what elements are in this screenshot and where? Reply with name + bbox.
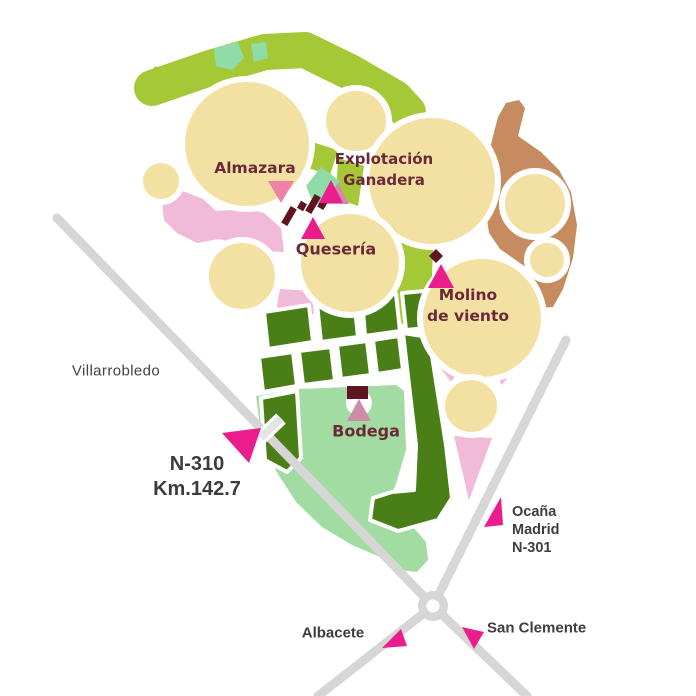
vineyard-plot	[264, 305, 313, 349]
label-ocana-line3: N-301	[512, 539, 560, 557]
crop-circle	[140, 160, 182, 202]
label-n310-line2: Km.142.7	[153, 477, 241, 502]
crop-circle	[502, 171, 568, 237]
label-almazara: Almazara	[214, 158, 296, 178]
crop-circle	[442, 377, 500, 435]
farm-map: Almazara Explotación Ganadera Quesería M…	[0, 0, 696, 696]
label-explotacion-ganadera: Explotación Ganadera	[335, 149, 433, 191]
label-ocana-line2: Madrid	[512, 521, 560, 539]
crop-circle	[206, 240, 278, 312]
vineyard-plot	[299, 347, 335, 385]
vineyard-plot	[259, 352, 297, 392]
label-ocana-madrid-n301: Ocaña Madrid N-301	[512, 503, 560, 557]
vineyard-plot	[337, 341, 371, 379]
label-queseria: Quesería	[296, 240, 376, 261]
label-explotacion-line2: Ganadera	[335, 170, 433, 191]
label-molino-line1: Molino	[427, 285, 509, 306]
map-canvas	[0, 0, 696, 696]
label-molino-line2: de viento	[427, 306, 509, 327]
crop-circle	[182, 79, 312, 209]
label-explotacion-line1: Explotación	[335, 149, 433, 170]
label-ocana-line1: Ocaña	[512, 503, 560, 521]
label-molino-de-viento: Molino de viento	[427, 285, 509, 327]
crop-circle	[527, 240, 567, 280]
label-albacete: Albacete	[302, 623, 365, 643]
label-villarrobledo: Villarrobledo	[72, 361, 160, 381]
roundabout-center	[427, 600, 440, 613]
label-n310-line1: N-310	[153, 452, 241, 477]
label-san-clemente: San Clemente	[487, 618, 586, 638]
label-bodega: Bodega	[332, 422, 400, 443]
label-n310-km: N-310 Km.142.7	[153, 452, 241, 502]
bodega-building-icon	[347, 386, 368, 399]
road-albacete	[318, 606, 433, 696]
vineyard-plot	[373, 336, 403, 374]
